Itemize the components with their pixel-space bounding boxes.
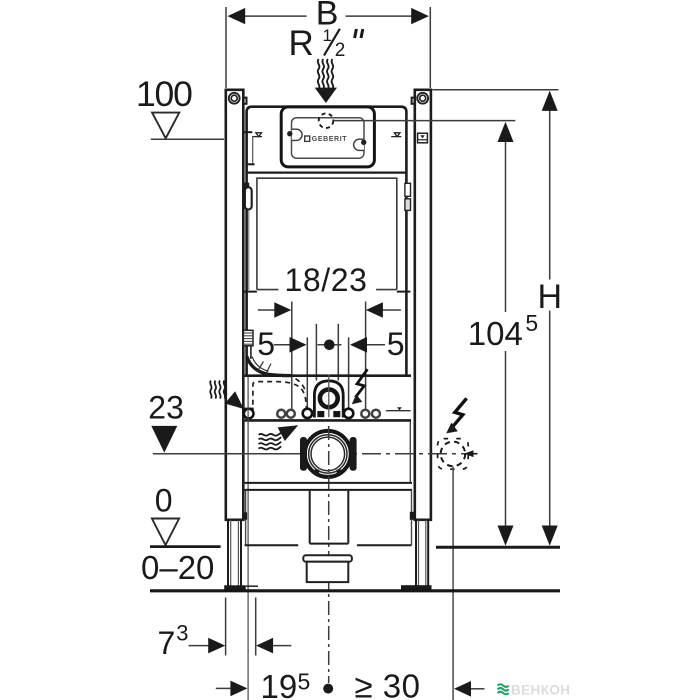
svg-text:100: 100 [136, 74, 192, 114]
svg-text:R: R [289, 24, 314, 63]
svg-text:ВЕНКОН: ВЕНКОН [511, 683, 570, 698]
svg-text:5: 5 [525, 310, 538, 336]
svg-text:0–20: 0–20 [141, 549, 214, 586]
svg-text:5: 5 [298, 669, 311, 695]
svg-text:3: 3 [176, 621, 188, 646]
svg-text:1: 1 [323, 26, 332, 45]
svg-text:18/23: 18/23 [285, 262, 368, 298]
svg-text:2: 2 [335, 40, 346, 61]
svg-text:GEBERIT: GEBERIT [312, 136, 347, 143]
svg-text:0: 0 [155, 483, 173, 519]
svg-text:5: 5 [387, 326, 405, 362]
svg-text:7: 7 [158, 625, 176, 661]
svg-text:23: 23 [148, 390, 184, 426]
svg-text:104: 104 [468, 315, 523, 352]
svg-text:≥ 30: ≥ 30 [355, 667, 421, 700]
svg-text:19: 19 [261, 668, 298, 700]
svg-text:H: H [538, 278, 563, 316]
svg-text:5: 5 [257, 326, 275, 362]
